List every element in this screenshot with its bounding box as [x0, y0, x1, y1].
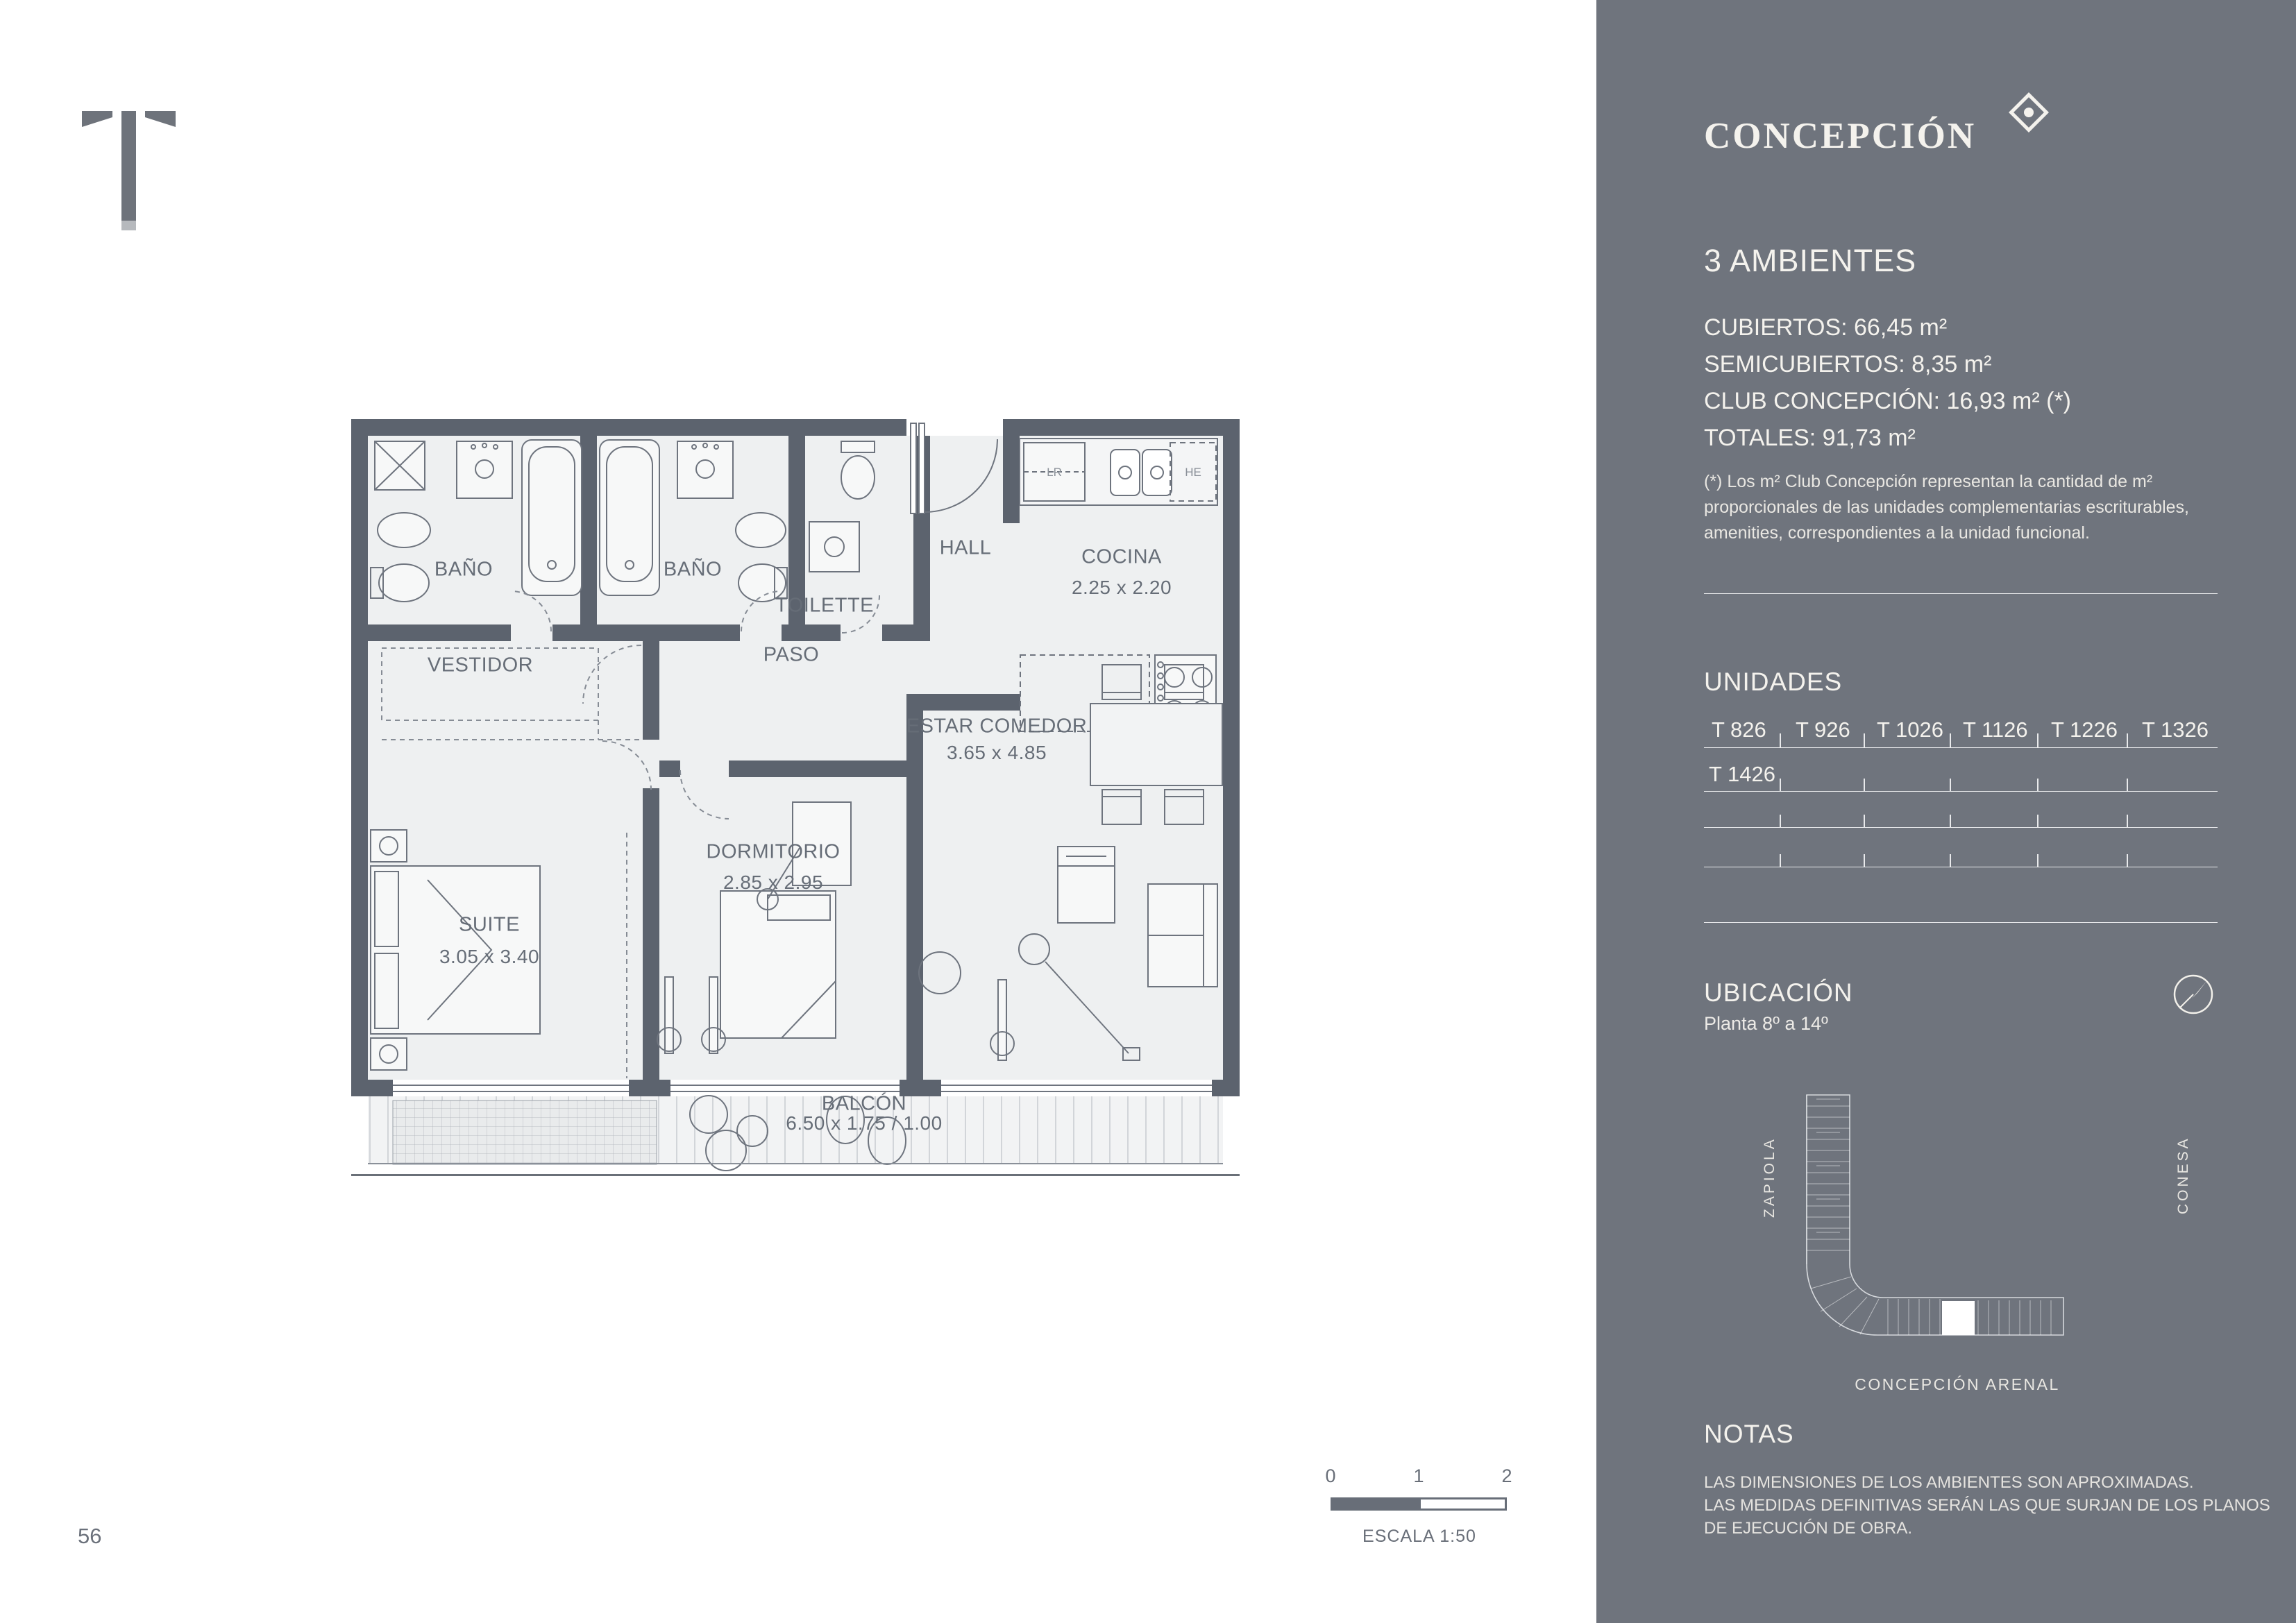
table-tick — [2037, 779, 2038, 791]
page-number: 56 — [78, 1524, 101, 1549]
ubicacion-heading: UBICACIÓN — [1704, 978, 1853, 1008]
unit-cell: T 926 — [1796, 717, 1850, 742]
table-tick — [1864, 779, 1865, 791]
street-label-conesa: CONESA — [2175, 1089, 2192, 1214]
footnote-line: proporcionales de las unidades complemen… — [1704, 495, 2189, 520]
room-label-estar: ESTAR COMEDOR — [906, 715, 1088, 738]
table-tick — [2127, 733, 2128, 747]
table-line — [1704, 791, 2218, 792]
table-tick — [1950, 779, 1951, 791]
room-label-hall: HALL — [940, 537, 992, 560]
street-label-concepcion-arenal: CONCEPCIÓN ARENAL — [1801, 1375, 2113, 1394]
scale-bar-light-segment — [1419, 1497, 1507, 1511]
table-tick — [1780, 779, 1781, 791]
notas-line: DE EJECUCIÓN DE OBRA. — [1704, 1517, 2270, 1540]
table-line — [1704, 827, 2218, 828]
unit-cell: T 1226 — [2051, 717, 2118, 742]
table-line — [1704, 867, 2218, 867]
brand-diamond-icon — [2002, 86, 2055, 139]
table-tick — [1950, 854, 1951, 867]
area-footnote: (*) Los m² Club Concepción representan l… — [1704, 469, 2189, 546]
scale-tick-2: 2 — [1501, 1465, 1512, 1487]
room-label-toilette: TOILETTE — [775, 595, 874, 618]
building-location-diagram — [1801, 1091, 2072, 1348]
room-dims-estar: 3.65 x 4.85 — [947, 742, 1047, 764]
room-label-dormitorio: DORMITORIO — [707, 841, 841, 864]
notas-line: LAS MEDIDAS DEFINITIVAS SERÁN LAS QUE SU… — [1704, 1494, 2270, 1517]
room-label-cocina: COCINA — [1081, 546, 1162, 569]
room-dims-cocina: 2.25 x 2.20 — [1072, 577, 1172, 599]
footnote-line: amenities, correspondientes a la unidad … — [1704, 520, 2189, 546]
footnote-line: (*) Los m² Club Concepción representan l… — [1704, 469, 2189, 495]
table-tick — [1780, 733, 1781, 747]
table-tick — [1864, 733, 1865, 747]
scale-label: ESCALA 1:50 — [1322, 1527, 1517, 1547]
room-label-bano2: BAÑO — [664, 559, 722, 581]
unidades-table: T 826 T 926 T 1026 T 1126 T 1226 T 1326 … — [1704, 717, 2218, 877]
area-line: SEMICUBIERTOS: 8,35 m² — [1704, 346, 2071, 383]
unit-cell: T 1026 — [1877, 717, 1943, 742]
unit-areas: CUBIERTOS: 66,45 m² SEMICUBIERTOS: 8,35 … — [1704, 309, 2071, 457]
compass-icon — [2170, 971, 2216, 1017]
table-tick — [2037, 733, 2038, 747]
scale-tick-0: 0 — [1325, 1465, 1335, 1487]
floor-plan-drawing — [351, 414, 1240, 1185]
notas-text: LAS DIMENSIONES DE LOS AMBIENTES SON APR… — [1704, 1471, 2270, 1540]
floor-plan: BAÑO BAÑO TOILETTE HALL COCINA 2.25 x 2.… — [351, 414, 1240, 1185]
scale-bar-dark-segment — [1331, 1497, 1419, 1511]
table-tick — [1780, 854, 1781, 867]
info-sidebar: CONCEPCIÓN 3 AMBIENTES CUBIERTOS: 66,45 … — [1596, 0, 2296, 1623]
room-label-bano1: BAÑO — [434, 559, 493, 581]
brochure-page: BAÑO BAÑO TOILETTE HALL COCINA 2.25 x 2.… — [0, 0, 2296, 1623]
t-logo-icon — [82, 111, 176, 235]
notas-heading: NOTAS — [1704, 1420, 1794, 1449]
room-dims-dormitorio: 2.85 x 2.95 — [723, 872, 823, 894]
table-tick — [1864, 815, 1865, 827]
street-label-zapiola: ZAPIOLA — [1762, 1086, 1778, 1218]
table-tick — [2127, 779, 2128, 791]
unit-cell: T 1326 — [2142, 717, 2209, 742]
scale-tick-1: 1 — [1413, 1465, 1424, 1487]
unidades-heading: UNIDADES — [1704, 668, 1842, 697]
divider — [1704, 593, 2218, 594]
appliance-label-fridge: LR — [1047, 466, 1062, 479]
area-line: TOTALES: 91,73 m² — [1704, 420, 2071, 457]
room-dims-suite: 3.05 x 3.40 — [439, 946, 539, 968]
brand-name: CONCEPCIÓN — [1704, 118, 1976, 155]
unit-cell: T 1426 — [1709, 762, 1775, 787]
unit-cell: T 826 — [1712, 717, 1766, 742]
area-line: CUBIERTOS: 66,45 m² — [1704, 309, 2071, 346]
table-tick — [1950, 815, 1951, 827]
unit-title: 3 AMBIENTES — [1704, 243, 1916, 279]
area-line: CLUB CONCEPCIÓN: 16,93 m² (*) — [1704, 383, 2071, 420]
room-label-paso: PASO — [763, 644, 819, 667]
scale-bar: 0 1 2 ESCALA 1:50 — [1322, 1461, 1517, 1551]
table-tick — [1864, 854, 1865, 867]
unit-cell: T 1126 — [1963, 717, 2028, 742]
notas-line: LAS DIMENSIONES DE LOS AMBIENTES SON APR… — [1704, 1471, 2270, 1494]
table-tick — [2127, 854, 2128, 867]
appliance-label-heater: HE — [1185, 466, 1201, 479]
table-tick — [1950, 733, 1951, 747]
table-line — [1704, 747, 2218, 748]
room-label-suite: SUITE — [459, 914, 520, 937]
ubicacion-floors: Planta 8º a 14º — [1704, 1013, 1828, 1035]
divider — [1704, 922, 2218, 923]
table-tick — [2037, 854, 2038, 867]
table-tick — [2037, 815, 2038, 827]
room-dims-balcon: 6.50 x 1.75 / 1.00 — [786, 1112, 942, 1135]
table-tick — [2127, 815, 2128, 827]
room-label-vestidor: VESTIDOR — [428, 654, 533, 677]
table-tick — [1780, 815, 1781, 827]
